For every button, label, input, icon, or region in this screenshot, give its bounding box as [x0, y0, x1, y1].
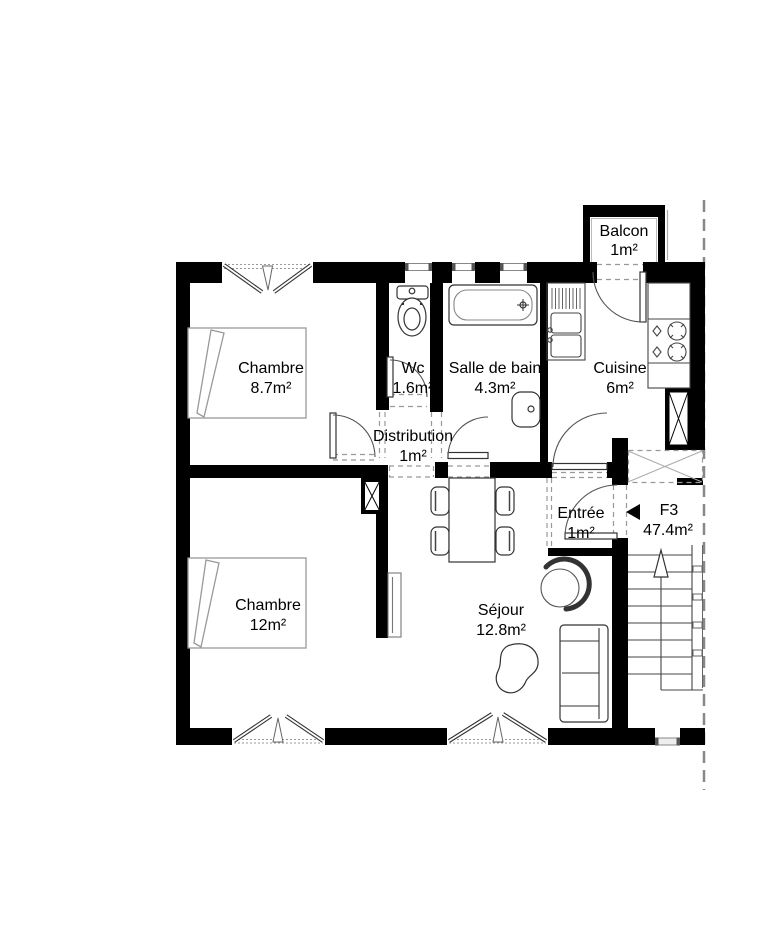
wall-top-3	[432, 262, 452, 283]
room-area-cuisine: 6m²	[606, 380, 634, 397]
wall-top-6	[643, 262, 705, 283]
room-label-sejour: Séjour	[478, 602, 525, 619]
floor-plan-svg: Chambre 8.7m² Wc 1.6m² Salle de bain 4.3…	[0, 0, 768, 948]
french-window-sejour-icon	[449, 714, 546, 743]
room-label-chambre1: Chambre	[238, 360, 304, 377]
stair-railing-icon	[693, 545, 703, 688]
radiator-icon	[388, 573, 401, 637]
bathtub-icon	[449, 285, 537, 325]
room-label-chambre2: Chambre	[235, 597, 301, 614]
floor-plan-canvas: Chambre 8.7m² Wc 1.6m² Salle de bain 4.3…	[0, 0, 768, 948]
window-wc-icon	[405, 263, 432, 271]
door-bath-icon	[448, 417, 488, 459]
door-chambre1-icon	[330, 413, 375, 458]
room-area-distribution: 1m²	[399, 448, 427, 465]
wall-top-4	[475, 262, 500, 283]
room-label-entree: Entrée	[557, 505, 604, 522]
sofa-icon	[560, 625, 608, 722]
french-window-chambre2-icon	[234, 716, 323, 743]
room-area-balcon: 1m²	[610, 242, 638, 259]
wall-top-5	[527, 262, 597, 283]
wall-mid-2	[490, 462, 552, 478]
room-label-cuisine: Cuisine	[593, 360, 646, 377]
wall-bottom-2	[325, 728, 447, 745]
dining-table-icon	[449, 478, 495, 562]
balcony-wall-left	[583, 205, 590, 262]
wall-landing-stub	[677, 478, 703, 485]
room-label-balcon: Balcon	[600, 223, 649, 240]
toilet-icon	[397, 286, 428, 336]
french-window-chambre1-icon	[224, 265, 312, 293]
bath-sink-icon	[512, 392, 540, 427]
wall-mid-1	[435, 462, 448, 478]
room-area-sejour: 12.8m²	[476, 622, 526, 639]
wall-bedrooms-divider	[176, 465, 388, 478]
stove-counter-icon	[648, 283, 690, 388]
room-label-distribution: Distribution	[373, 428, 453, 445]
wall-bottom-3	[548, 728, 655, 745]
stairs-up-arrow-icon	[654, 550, 668, 577]
landing-storage-icon	[628, 451, 703, 483]
wall-sejour-stairs	[612, 538, 628, 745]
balcony-wall-top	[583, 205, 665, 217]
kitchen-sink-counter-icon	[547, 283, 585, 360]
entrance-arrow-icon	[626, 504, 640, 520]
unit-area: 47.4m²	[643, 522, 693, 539]
unit-label: F3	[660, 502, 679, 519]
room-area-entree: 1m²	[567, 525, 595, 542]
wall-entry-stub	[548, 548, 612, 556]
wall-entry-top	[612, 438, 628, 485]
stairs-icon	[628, 545, 703, 690]
wall-top-2	[313, 262, 405, 283]
room-area-chambre2: 12m²	[250, 617, 287, 634]
window-bath-2-icon	[500, 263, 527, 271]
room-area-chambre1: 8.7m²	[251, 380, 293, 397]
room-label-wc: Wc	[401, 360, 424, 377]
coffee-table-icon	[496, 644, 538, 693]
room-area-wc: 1.6m²	[393, 380, 435, 397]
balcony-wall-right	[658, 205, 665, 262]
wall-bottom-4	[680, 728, 705, 745]
armchair-icon	[541, 559, 589, 609]
door-kitchen-icon	[552, 413, 607, 470]
window-stairwell-icon	[655, 738, 680, 746]
room-label-salle-de-bain: Salle de bain	[449, 360, 542, 377]
wall-bottom-1	[176, 728, 232, 745]
window-bath-1-icon	[452, 263, 475, 271]
room-area-salle-de-bain: 4.3m²	[475, 380, 517, 397]
